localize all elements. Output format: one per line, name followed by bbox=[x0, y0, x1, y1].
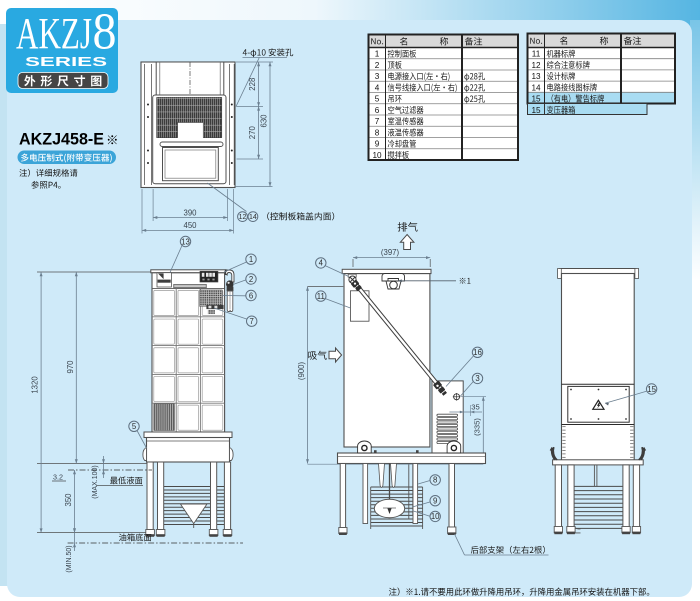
svg-text:15: 15 bbox=[531, 106, 541, 115]
svg-text:8: 8 bbox=[93, 4, 117, 61]
svg-text:(900): (900) bbox=[297, 361, 306, 380]
svg-text:AKZJ458-E: AKZJ458-E bbox=[19, 131, 104, 149]
svg-text:630: 630 bbox=[259, 114, 268, 128]
svg-text:4: 4 bbox=[319, 259, 324, 268]
svg-text:11: 11 bbox=[532, 50, 541, 59]
svg-text:2: 2 bbox=[249, 275, 253, 284]
svg-text:10: 10 bbox=[372, 151, 382, 160]
svg-text:11: 11 bbox=[317, 292, 325, 301]
svg-text:1: 1 bbox=[375, 50, 380, 59]
svg-text:SERIES: SERIES bbox=[25, 54, 107, 69]
svg-text:(397): (397) bbox=[381, 248, 400, 257]
svg-text:6: 6 bbox=[375, 106, 380, 115]
svg-text:15: 15 bbox=[531, 95, 541, 104]
svg-text:16: 16 bbox=[473, 348, 482, 357]
svg-text:(MAX.100): (MAX.100) bbox=[92, 465, 99, 498]
svg-text:5: 5 bbox=[132, 422, 137, 431]
svg-text:13: 13 bbox=[181, 237, 190, 246]
svg-text:5: 5 bbox=[375, 95, 380, 104]
svg-text:2: 2 bbox=[375, 61, 380, 70]
svg-text:3.2: 3.2 bbox=[53, 473, 63, 482]
svg-text:10: 10 bbox=[431, 512, 440, 521]
svg-text:8: 8 bbox=[375, 128, 380, 137]
svg-text:390: 390 bbox=[183, 208, 197, 217]
svg-text:14: 14 bbox=[249, 214, 257, 221]
svg-text:7: 7 bbox=[375, 117, 380, 126]
svg-text:3: 3 bbox=[475, 374, 479, 383]
svg-text:12: 12 bbox=[531, 61, 541, 70]
svg-text:9: 9 bbox=[433, 497, 437, 506]
svg-text:35: 35 bbox=[471, 403, 479, 412]
svg-text:9: 9 bbox=[375, 140, 380, 149]
svg-text:8: 8 bbox=[433, 476, 437, 485]
svg-text:15: 15 bbox=[647, 385, 656, 394]
svg-text:4: 4 bbox=[375, 83, 380, 92]
svg-text:3: 3 bbox=[375, 72, 380, 81]
svg-text:270: 270 bbox=[248, 126, 257, 140]
svg-text:970: 970 bbox=[66, 360, 75, 374]
svg-text:(MIN.50): (MIN.50) bbox=[66, 545, 73, 572]
svg-text:6: 6 bbox=[249, 291, 253, 300]
svg-text:14: 14 bbox=[531, 83, 541, 92]
svg-text:228: 228 bbox=[248, 78, 257, 91]
svg-text:350: 350 bbox=[64, 493, 73, 507]
svg-text:1320: 1320 bbox=[31, 376, 40, 394]
svg-text:13: 13 bbox=[531, 72, 541, 81]
svg-text:7: 7 bbox=[250, 317, 254, 326]
svg-text:450: 450 bbox=[183, 221, 197, 230]
svg-text:(335): (335) bbox=[472, 418, 481, 436]
svg-text:12: 12 bbox=[239, 214, 247, 221]
svg-text:AKZJ: AKZJ bbox=[16, 9, 92, 58]
svg-text:1: 1 bbox=[249, 255, 253, 264]
